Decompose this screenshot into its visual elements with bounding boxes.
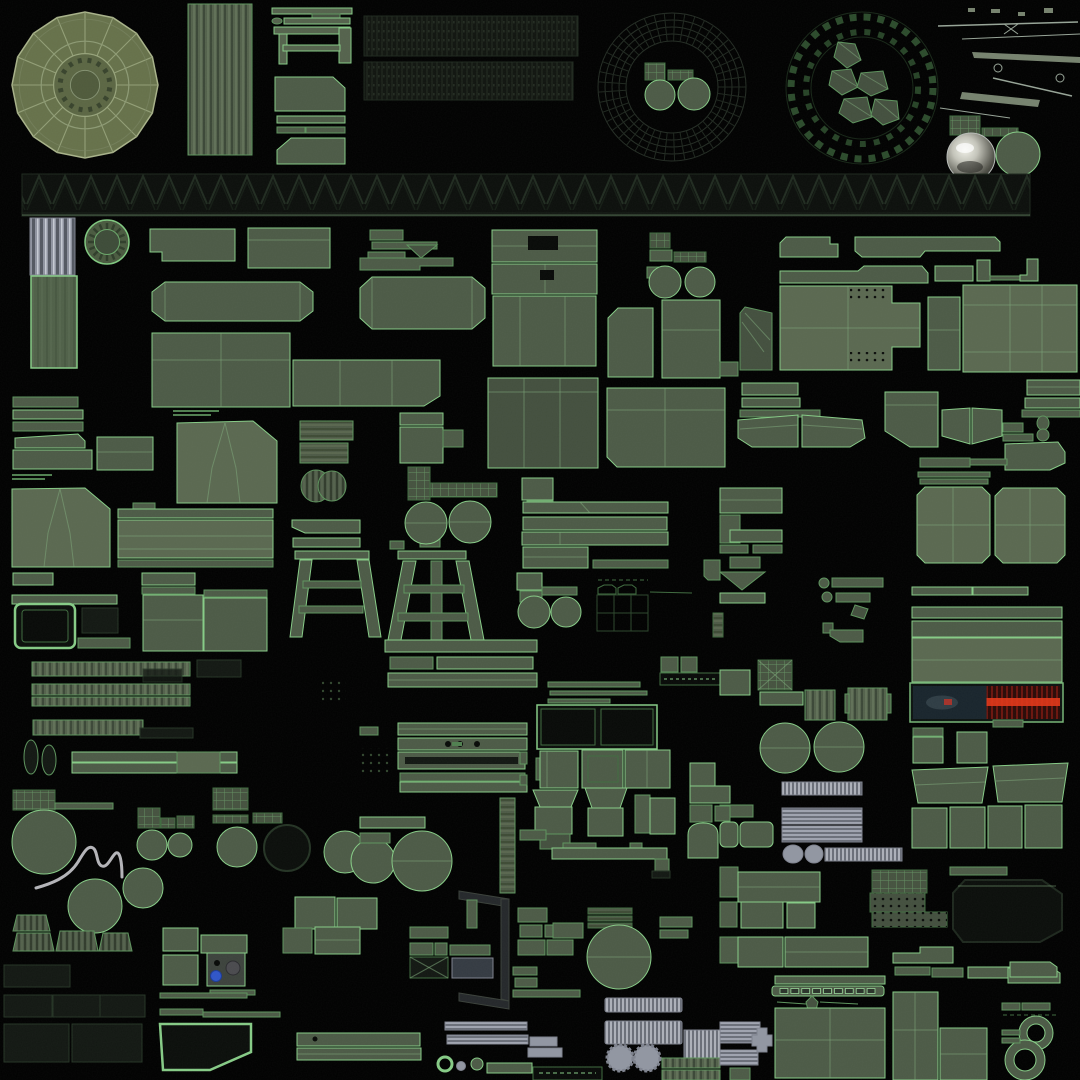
film-grain-overlay <box>0 0 1080 1080</box>
texture-atlas-page <box>0 0 1080 1080</box>
uv-texture-atlas-canvas <box>0 0 1080 1080</box>
